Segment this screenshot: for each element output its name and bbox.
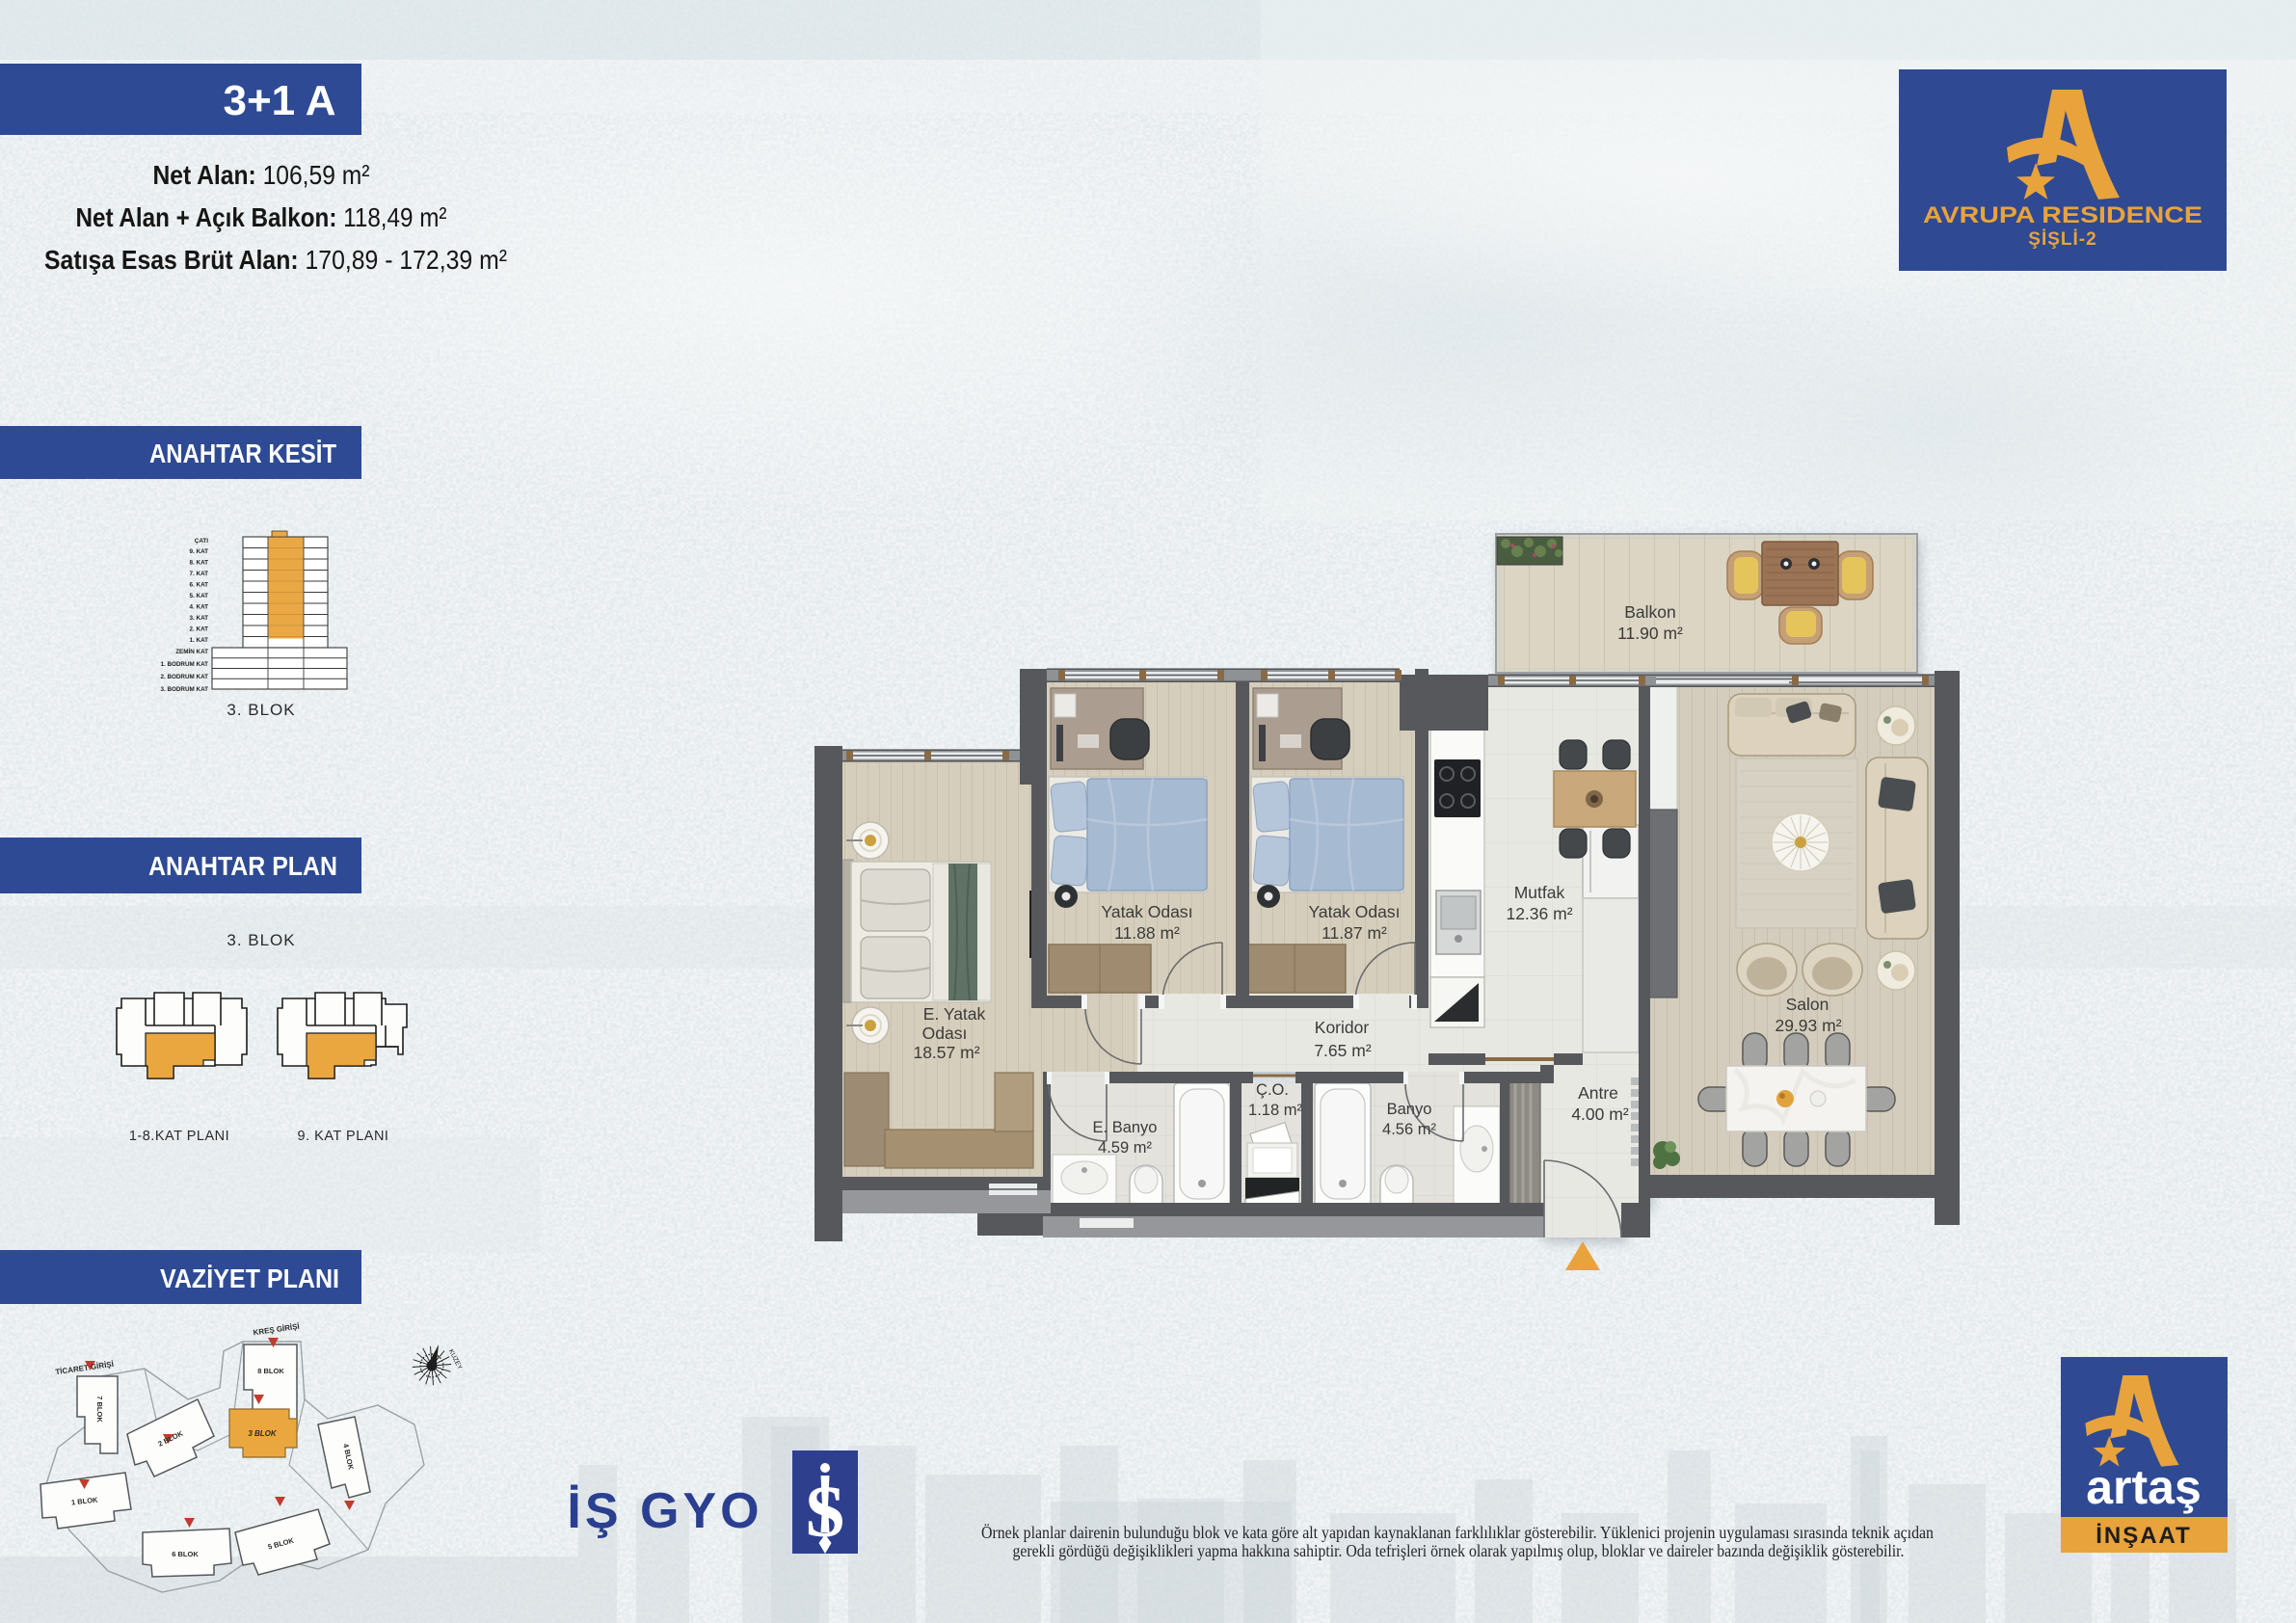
svg-text:3. KAT: 3. KAT	[190, 615, 209, 622]
svg-text:8. KAT: 8. KAT	[190, 560, 209, 567]
svg-text:8 BLOK: 8 BLOK	[257, 1367, 284, 1375]
svg-text:3. BLOK: 3. BLOK	[227, 931, 295, 949]
svg-text:3+1 A: 3+1 A	[223, 77, 335, 124]
svg-text:18.57 m²: 18.57 m²	[913, 1043, 979, 1062]
svg-text:ŞİŞLİ-2: ŞİŞLİ-2	[2028, 229, 2096, 250]
svg-text:Yatak Odası: Yatak Odası	[1308, 902, 1400, 921]
svg-text:5. KAT: 5. KAT	[190, 593, 209, 599]
svg-text:Net Alan + Açık Balkon: 118,49: Net Alan + Açık Balkon: 118,49 m²	[76, 202, 447, 232]
svg-text:4.00 m²: 4.00 m²	[1571, 1104, 1628, 1124]
svg-text:9. KAT: 9. KAT	[190, 548, 209, 555]
svg-text:Odası: Odası	[922, 1024, 968, 1043]
svg-text:11.90 m²: 11.90 m²	[1617, 624, 1683, 643]
svg-text:3 BLOK: 3 BLOK	[248, 1429, 278, 1438]
svg-text:AVRUPA RESIDENCE: AVRUPA RESIDENCE	[1923, 202, 2203, 228]
svg-text:Salon: Salon	[1786, 995, 1829, 1014]
svg-text:7. KAT: 7. KAT	[190, 571, 209, 577]
svg-text:Antre: Antre	[1578, 1083, 1618, 1103]
svg-text:9. KAT PLANI: 9. KAT PLANI	[298, 1129, 389, 1144]
svg-text:İNŞAAT: İNŞAAT	[2096, 1523, 2192, 1549]
svg-text:Örnek planlar dairenin bulundu: Örnek planlar dairenin bulunduğu blok ve…	[981, 1523, 1934, 1542]
svg-text:gerekli gördüğü değişiklikleri: gerekli gördüğü değişiklikleri yapma hak…	[1013, 1541, 1905, 1560]
svg-text:2. KAT: 2. KAT	[190, 626, 209, 633]
svg-text:E. Yatak: E. Yatak	[923, 1004, 986, 1024]
svg-text:E. Banyo: E. Banyo	[1093, 1119, 1158, 1136]
svg-text:artaş: artaş	[2086, 1460, 2202, 1514]
svg-text:7.65 m²: 7.65 m²	[1314, 1041, 1371, 1060]
svg-text:Balkon: Balkon	[1624, 602, 1676, 622]
svg-text:4.56 m²: 4.56 m²	[1382, 1121, 1436, 1138]
svg-text:1-8.KAT PLANI: 1-8.KAT PLANI	[129, 1129, 229, 1144]
svg-text:1.18 m²: 1.18 m²	[1248, 1102, 1302, 1119]
svg-text:29.93 m²: 29.93 m²	[1775, 1016, 1841, 1035]
svg-text:4.59 m²: 4.59 m²	[1098, 1139, 1152, 1157]
svg-text:4. KAT: 4. KAT	[190, 604, 209, 611]
svg-text:3. BODRUM KAT: 3. BODRUM KAT	[160, 686, 208, 693]
svg-text:ANAHTAR PLAN: ANAHTAR PLAN	[148, 851, 337, 881]
svg-text:11.87 m²: 11.87 m²	[1322, 923, 1387, 943]
svg-text:6. KAT: 6. KAT	[190, 582, 209, 589]
svg-text:İŞ GYO: İŞ GYO	[567, 1483, 762, 1539]
svg-text:Koridor: Koridor	[1315, 1018, 1370, 1037]
svg-text:1. BODRUM KAT: 1. BODRUM KAT	[160, 661, 208, 668]
svg-text:2. BODRUM KAT: 2. BODRUM KAT	[160, 674, 208, 680]
svg-text:ZEMİN KAT: ZEMİN KAT	[175, 648, 208, 655]
svg-text:11.88 m²: 11.88 m²	[1114, 923, 1180, 943]
svg-text:6 BLOK: 6 BLOK	[172, 1550, 199, 1558]
svg-text:12.36 m²: 12.36 m²	[1506, 904, 1572, 923]
svg-text:Satışa Esas Brüt Alan: 170,89: Satışa Esas Brüt Alan: 170,89 - 172,39 m…	[44, 245, 507, 275]
svg-text:Banyo: Banyo	[1387, 1101, 1432, 1118]
svg-text:3. BLOK: 3. BLOK	[227, 701, 295, 719]
svg-text:Ç.O.: Ç.O.	[1256, 1081, 1289, 1099]
svg-text:ANAHTAR KESİT: ANAHTAR KESİT	[149, 439, 336, 468]
svg-text:Mutfak: Mutfak	[1514, 883, 1565, 902]
svg-text:Yatak Odası: Yatak Odası	[1101, 902, 1192, 921]
svg-text:1. KAT: 1. KAT	[190, 637, 209, 644]
svg-text:7 BLOK: 7 BLOK	[95, 1396, 104, 1423]
svg-text:Net Alan: 106,59 m²: Net Alan: 106,59 m²	[153, 160, 370, 190]
svg-text:VAZİYET PLANI: VAZİYET PLANI	[160, 1264, 339, 1293]
svg-text:ÇATI: ÇATI	[195, 538, 208, 545]
